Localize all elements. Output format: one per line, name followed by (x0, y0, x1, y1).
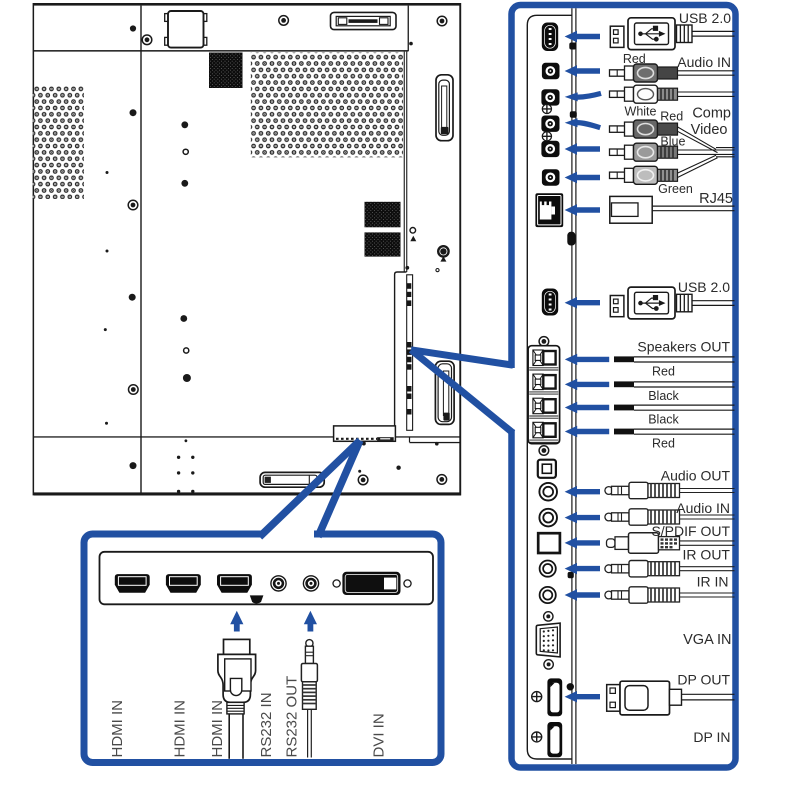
svg-text:Comp: Comp (692, 105, 731, 121)
svg-text:DP OUT: DP OUT (677, 672, 730, 688)
svg-text:HDMI IN: HDMI IN (209, 700, 226, 758)
svg-text:Audio IN: Audio IN (676, 500, 730, 516)
svg-text:Audio OUT: Audio OUT (661, 468, 731, 484)
svg-text:Red: Red (623, 52, 646, 66)
svg-text:HDMI IN: HDMI IN (109, 700, 126, 758)
svg-text:Red: Red (652, 365, 675, 379)
svg-text:HDMI IN: HDMI IN (172, 700, 189, 758)
svg-text:Green: Green (658, 182, 693, 196)
svg-text:VGA IN: VGA IN (683, 632, 731, 648)
svg-text:Red: Red (660, 110, 683, 124)
svg-text:Speakers OUT: Speakers OUT (637, 339, 730, 355)
svg-text:Red: Red (652, 437, 675, 451)
svg-text:Video: Video (691, 122, 728, 138)
svg-text:DP IN: DP IN (693, 729, 730, 745)
svg-text:Blue: Blue (660, 135, 685, 149)
svg-text:DVI IN: DVI IN (371, 713, 388, 757)
svg-text:USB 2.0: USB 2.0 (678, 279, 730, 295)
svg-text:Audio IN: Audio IN (677, 54, 731, 70)
svg-text:Black: Black (648, 389, 679, 403)
svg-text:S/PDIF OUT: S/PDIF OUT (651, 523, 730, 539)
svg-text:RS232 IN: RS232 IN (258, 692, 275, 757)
svg-text:Black: Black (648, 413, 679, 427)
svg-text:RS232 OUT: RS232 OUT (283, 676, 300, 758)
svg-text:White: White (625, 105, 657, 119)
svg-text:USB 2.0: USB 2.0 (679, 10, 731, 26)
svg-text:RJ45: RJ45 (699, 191, 733, 207)
svg-text:IR IN: IR IN (697, 573, 729, 589)
svg-text:IR OUT: IR OUT (683, 547, 731, 563)
